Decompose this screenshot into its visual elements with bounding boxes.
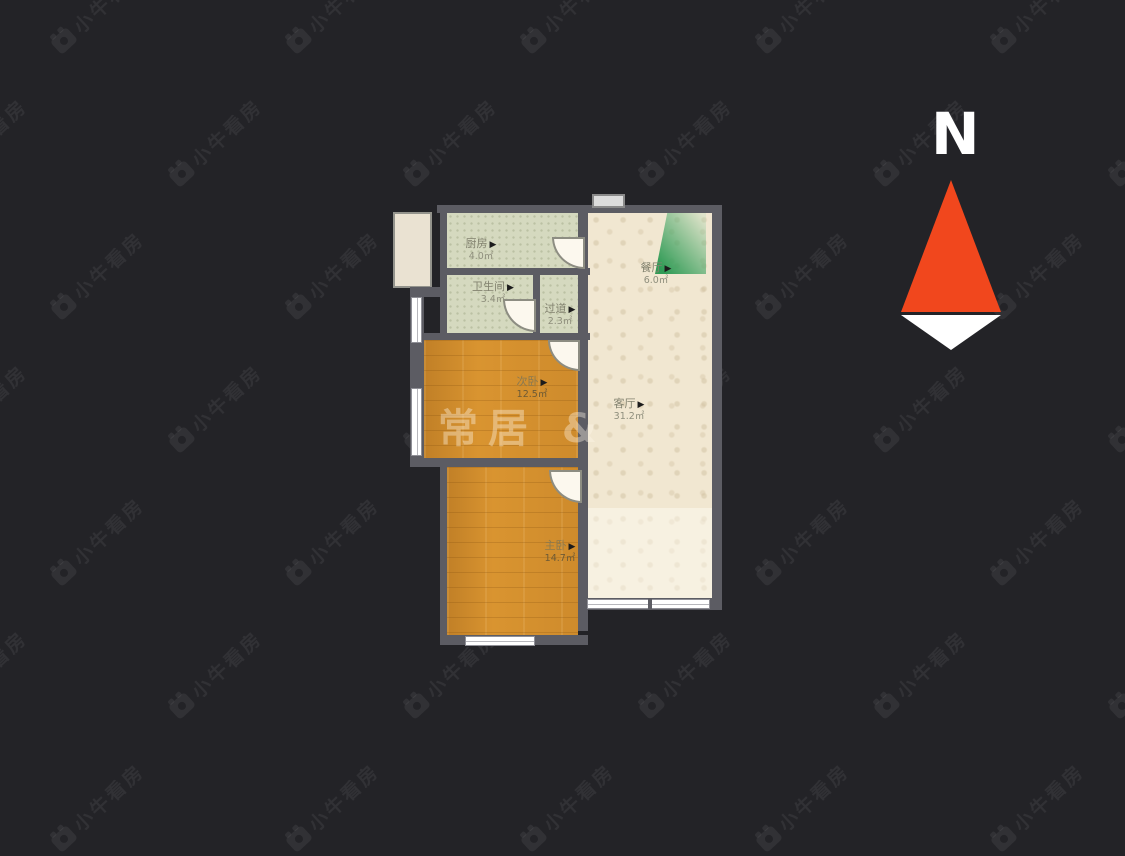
- brand-watermark: 小牛看房: [281, 491, 384, 590]
- room-arrow-icon: ▶: [507, 283, 514, 293]
- room-arrow-icon: ▶: [665, 264, 672, 274]
- brand-logo-icon: [402, 691, 430, 719]
- brand-watermark: 小牛看房: [46, 491, 149, 590]
- room-arrow-icon: ▶: [638, 400, 645, 410]
- living-room-light-area: [588, 508, 712, 598]
- brand-watermark-text: 小牛看房: [655, 92, 738, 172]
- brand-logo-icon: [989, 558, 1017, 586]
- brand-logo-icon: [49, 26, 77, 54]
- brand-watermark: 小牛看房: [0, 624, 33, 723]
- brand-watermark-text: 小牛看房: [67, 0, 150, 39]
- brand-watermark: 小牛看房: [164, 92, 267, 191]
- brand-watermark: 小牛看房: [751, 757, 854, 856]
- brand-watermark-text: 小牛看房: [0, 92, 33, 172]
- brand-watermark-text: 小牛看房: [1007, 757, 1090, 837]
- room-name: 卫生间: [472, 280, 505, 293]
- room-area: 6.0㎡: [641, 275, 672, 287]
- room-label-dining-room: 餐厅▶ 6.0㎡: [641, 261, 672, 287]
- wall-master-left: [440, 467, 447, 645]
- brand-watermark: 小牛看房: [164, 624, 267, 723]
- room-area: 12.5㎡: [517, 389, 548, 401]
- brand-watermark: 小牛看房: [164, 358, 267, 457]
- brand-logo-icon: [1107, 159, 1125, 187]
- wall-kitchen-bottom: [440, 268, 590, 275]
- brand-watermark-text: 小牛看房: [185, 624, 268, 704]
- brand-watermark-text: 小牛看房: [67, 491, 150, 571]
- room-label-kitchen: 厨房▶ 4.0㎡: [466, 237, 497, 263]
- compass-needle-north-icon: [901, 180, 1001, 312]
- room-area: 31.2㎡: [614, 411, 645, 423]
- brand-logo-icon: [284, 292, 312, 320]
- brand-watermark-text: 小牛看房: [537, 0, 620, 39]
- brand-logo-icon: [1107, 425, 1125, 453]
- brand-watermark: 小牛看房: [986, 0, 1089, 58]
- brand-logo-icon: [989, 26, 1017, 54]
- room-arrow-icon: ▶: [490, 240, 497, 250]
- brand-logo-icon: [402, 159, 430, 187]
- brand-logo-icon: [989, 824, 1017, 852]
- brand-watermark-text: 小牛看房: [185, 92, 268, 172]
- brand-watermark-text: 小牛看房: [772, 491, 855, 571]
- brand-watermark: 小牛看房: [0, 92, 33, 191]
- compass-needle-south-icon: [901, 315, 1001, 350]
- brand-watermark-text: 小牛看房: [67, 757, 150, 837]
- brand-watermark: 小牛看房: [281, 0, 384, 58]
- brand-watermark-text: 小牛看房: [772, 757, 855, 837]
- brand-watermark-text: 小牛看房: [890, 358, 973, 438]
- window-divider-tick: [648, 599, 652, 609]
- brand-watermark-text: 小牛看房: [302, 0, 385, 39]
- brand-logo-icon: [284, 824, 312, 852]
- brand-watermark: 小牛看房: [1104, 358, 1125, 457]
- brand-logo-icon: [872, 425, 900, 453]
- brand-watermark-text: 小牛看房: [0, 358, 33, 438]
- brand-watermark: 小牛看房: [46, 0, 149, 58]
- room-name: 厨房: [466, 237, 488, 250]
- brand-watermark-text: 小牛看房: [890, 624, 973, 704]
- room-label-bathroom: 卫生间▶ 3.4㎡: [472, 280, 514, 306]
- brand-watermark: 小牛看房: [281, 757, 384, 856]
- room-name: 客厅: [614, 397, 636, 410]
- brand-watermark-text: 小牛看房: [0, 624, 33, 704]
- room-area: 2.3㎡: [545, 316, 576, 328]
- brand-logo-icon: [167, 425, 195, 453]
- brand-logo-icon: [754, 292, 782, 320]
- brand-watermark-text: 小牛看房: [185, 358, 268, 438]
- wall-right-outer: [712, 205, 722, 610]
- brand-watermark: 小牛看房: [986, 491, 1089, 590]
- room-label-living-room: 客厅▶ 31.2㎡: [614, 397, 645, 423]
- room-arrow-icon: ▶: [569, 542, 576, 552]
- brand-logo-icon: [872, 691, 900, 719]
- room-name: 餐厅: [641, 261, 663, 274]
- room-area: 4.0㎡: [466, 251, 497, 263]
- room-arrow-icon: ▶: [569, 305, 576, 315]
- room-area: 14.7㎡: [545, 553, 576, 565]
- brand-logo-icon: [754, 558, 782, 586]
- entry-door-box: [592, 194, 625, 208]
- brand-logo-icon: [167, 159, 195, 187]
- brand-watermark-text: 小牛看房: [420, 92, 503, 172]
- exterior-platform: [393, 212, 432, 288]
- room-name: 主卧: [545, 539, 567, 552]
- room-label-hallway: 过道▶ 2.3㎡: [545, 302, 576, 328]
- room-label-master-bedroom: 主卧▶ 14.7㎡: [545, 539, 576, 565]
- brand-logo-icon: [754, 26, 782, 54]
- brand-watermark: 小牛看房: [399, 92, 502, 191]
- wall-green-bottom: [417, 333, 590, 340]
- brand-watermark: 小牛看房: [751, 225, 854, 324]
- room-name: 次卧: [517, 375, 539, 388]
- window-left-upper: [411, 297, 422, 343]
- brand-logo-icon: [49, 824, 77, 852]
- compass-north-label: N: [931, 100, 980, 168]
- brand-watermark: 小牛看房: [1104, 92, 1125, 191]
- room-arrow-icon: ▶: [541, 378, 548, 388]
- compass: N: [880, 100, 1025, 360]
- brand-logo-icon: [637, 159, 665, 187]
- brand-watermark: 小牛看房: [281, 225, 384, 324]
- brand-watermark-text: 小牛看房: [1007, 0, 1090, 39]
- brand-logo-icon: [637, 691, 665, 719]
- brand-watermark: 小牛看房: [869, 624, 972, 723]
- brand-watermark-text: 小牛看房: [302, 491, 385, 571]
- brand-watermark: 小牛看房: [634, 92, 737, 191]
- brand-watermark: 小牛看房: [869, 358, 972, 457]
- brand-watermark: 小牛看房: [986, 757, 1089, 856]
- brand-logo-icon: [284, 26, 312, 54]
- brand-logo-icon: [754, 824, 782, 852]
- brand-watermark: 小牛看房: [46, 225, 149, 324]
- brand-logo-icon: [1107, 691, 1125, 719]
- brand-watermark-text: 小牛看房: [772, 0, 855, 39]
- brand-watermark-text: 小牛看房: [537, 757, 620, 837]
- room-area: 3.4㎡: [472, 294, 514, 306]
- brand-watermark: 小牛看房: [0, 358, 33, 457]
- brand-watermark: 小牛看房: [751, 0, 854, 58]
- brand-watermark-text: 小牛看房: [302, 757, 385, 837]
- brand-logo-icon: [167, 691, 195, 719]
- brand-logo-icon: [284, 558, 312, 586]
- window-master-bedroom: [465, 636, 535, 646]
- floor-plan: 厨房▶ 4.0㎡ 卫生间▶ 3.4㎡ 过道▶ 2.3㎡ 次卧▶ 12.5㎡ 主卧…: [393, 193, 725, 650]
- brand-watermark-text: 小牛看房: [67, 225, 150, 305]
- window-second-bedroom: [411, 388, 422, 456]
- brand-logo-icon: [49, 292, 77, 320]
- brand-watermark: 小牛看房: [46, 757, 149, 856]
- room-name: 过道: [545, 302, 567, 315]
- brand-watermark-text: 小牛看房: [1007, 491, 1090, 571]
- brand-watermark: 小牛看房: [516, 0, 619, 58]
- wall-bedroom-divider: [410, 458, 588, 467]
- brand-watermark: 小牛看房: [516, 757, 619, 856]
- brand-watermark: 小牛看房: [751, 491, 854, 590]
- brand-watermark: 小牛看房: [1104, 624, 1125, 723]
- room-label-second-bedroom: 次卧▶ 12.5㎡: [517, 375, 548, 401]
- brand-watermark-text: 小牛看房: [302, 225, 385, 305]
- brand-watermark-text: 小牛看房: [772, 225, 855, 305]
- brand-logo-icon: [519, 26, 547, 54]
- brand-logo-icon: [519, 824, 547, 852]
- brand-logo-icon: [49, 558, 77, 586]
